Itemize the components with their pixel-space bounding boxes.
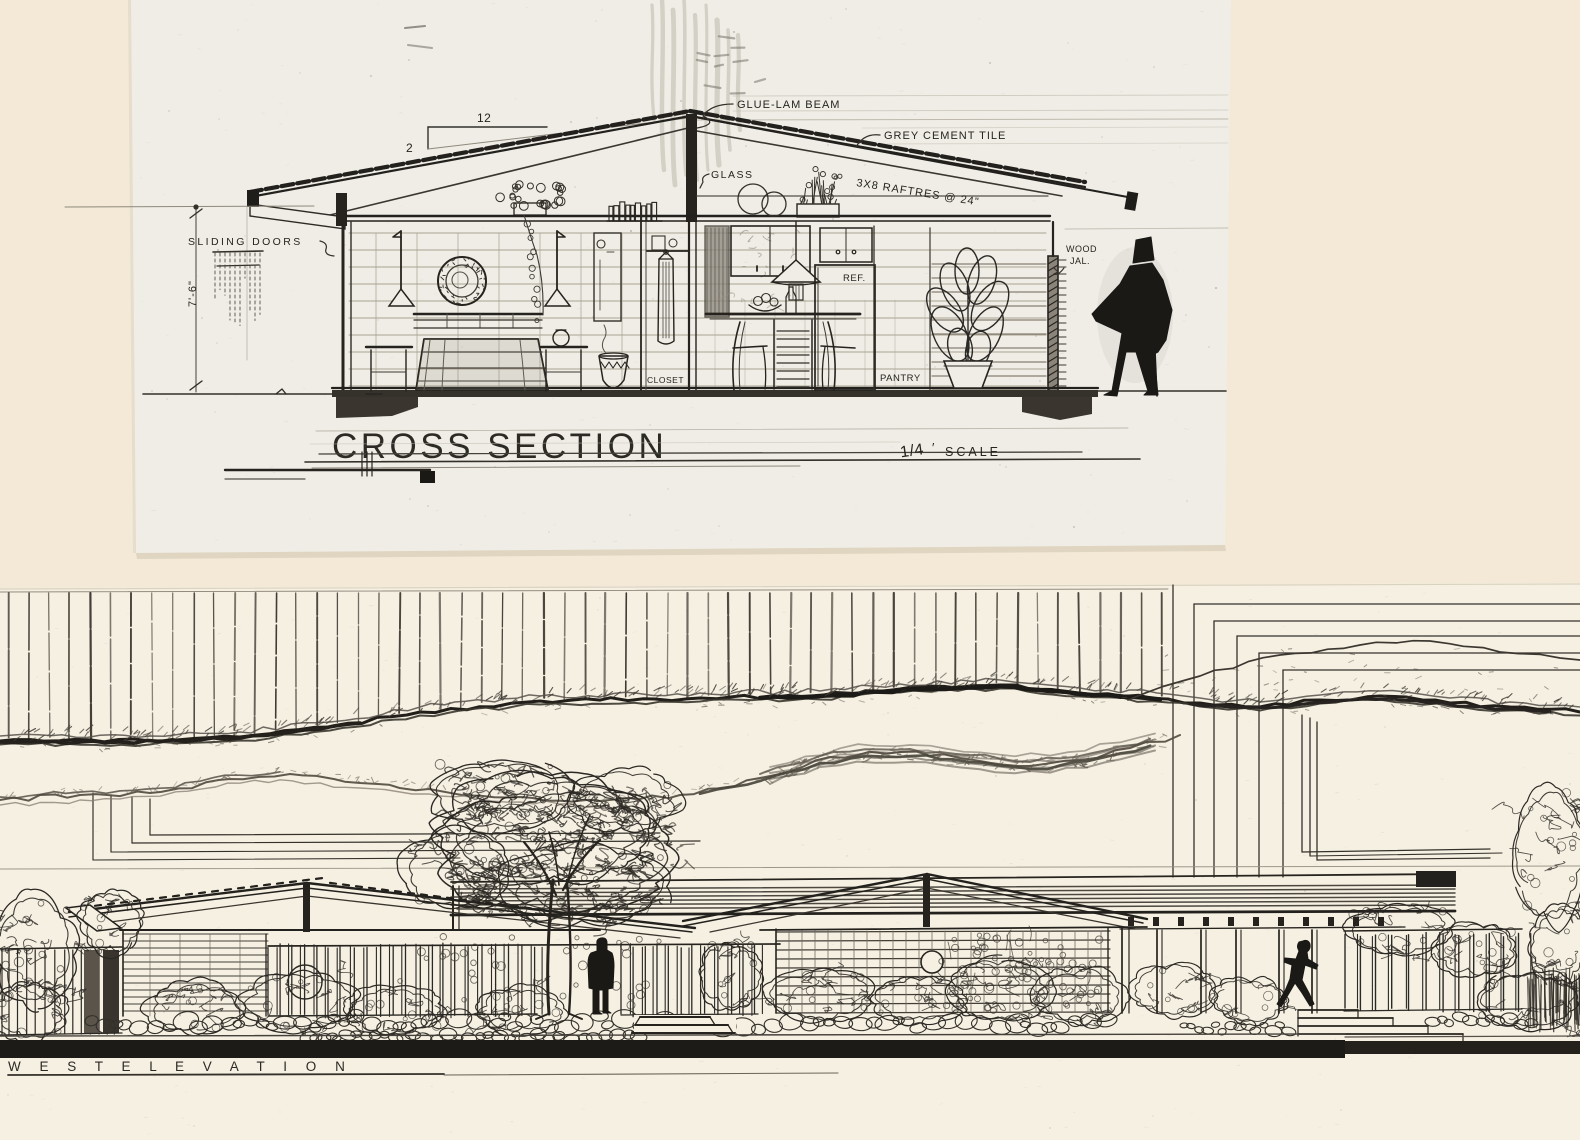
svg-text:JAL.: JAL.	[1070, 256, 1090, 266]
svg-text:GLUE-LAM BEAM: GLUE-LAM BEAM	[737, 99, 840, 111]
svg-text:2: 2	[406, 141, 413, 155]
svg-text:SCALE: SCALE	[945, 445, 1001, 459]
svg-text:12: 12	[477, 111, 491, 125]
svg-text:WOOD: WOOD	[1066, 244, 1097, 254]
svg-text:REF.: REF.	[843, 273, 866, 284]
svg-text:GLASS: GLASS	[711, 169, 754, 181]
svg-text:7'-6": 7'-6"	[187, 280, 199, 307]
svg-text:PANTRY: PANTRY	[880, 373, 921, 384]
svg-text:1/4: 1/4	[899, 441, 925, 461]
svg-text:W E S T E L E V A T I O N: W E S T E L E V A T I O N	[8, 1059, 352, 1074]
svg-text:SLIDING DOORS: SLIDING DOORS	[188, 236, 303, 248]
svg-text:CLOSET: CLOSET	[647, 375, 684, 385]
svg-text:GREY CEMENT TILE: GREY CEMENT TILE	[884, 130, 1006, 142]
